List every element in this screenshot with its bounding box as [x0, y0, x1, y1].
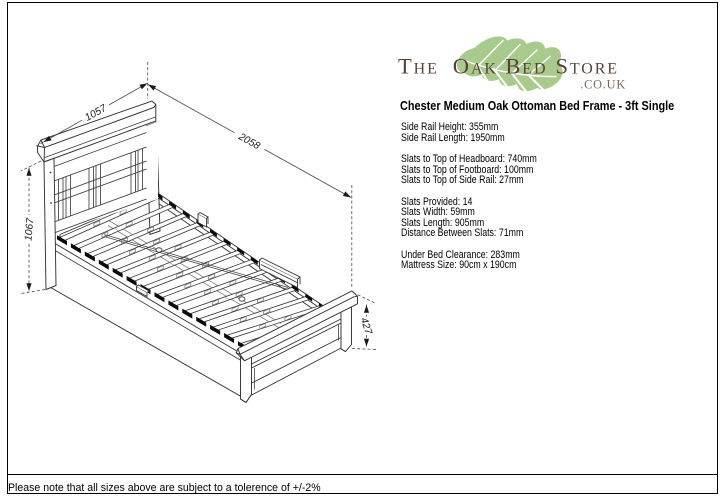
svg-text:1067: 1067 — [23, 217, 36, 241]
svg-text:2058: 2058 — [236, 131, 262, 152]
svg-text:427: 427 — [358, 316, 374, 336]
